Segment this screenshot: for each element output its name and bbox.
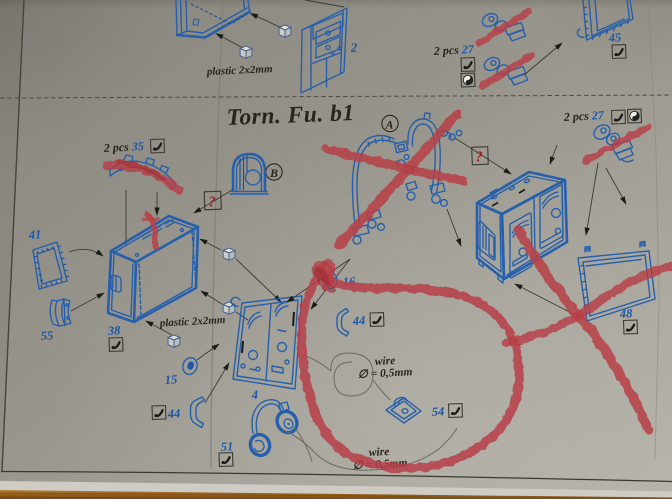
svg-text:54: 54 xyxy=(431,404,444,419)
svg-text:38: 38 xyxy=(106,323,121,338)
svg-text:?: ? xyxy=(208,194,216,210)
svg-text:B: B xyxy=(269,166,278,180)
svg-text:41: 41 xyxy=(27,227,41,242)
svg-text:wire: wire xyxy=(375,355,396,368)
svg-text:51: 51 xyxy=(220,439,233,454)
svg-text:A: A xyxy=(385,118,394,132)
svg-text:44: 44 xyxy=(351,313,365,328)
svg-text:2 pcs 35: 2 pcs 35 xyxy=(102,139,144,155)
svg-text:15: 15 xyxy=(164,372,177,387)
svg-text:wire: wire xyxy=(369,446,390,459)
svg-text:2 pcs 27: 2 pcs 27 xyxy=(432,42,475,58)
svg-text:2 pcs 27: 2 pcs 27 xyxy=(562,108,605,124)
svg-text:Torn. Fu. b1: Torn. Fu. b1 xyxy=(226,100,355,131)
svg-text:44: 44 xyxy=(166,406,180,421)
svg-text:?: ? xyxy=(475,149,483,165)
svg-text:45: 45 xyxy=(607,30,621,45)
svg-text:55: 55 xyxy=(40,328,53,343)
svg-text:2: 2 xyxy=(349,40,358,55)
svg-text:4: 4 xyxy=(250,388,258,402)
svg-text:48: 48 xyxy=(618,306,633,321)
